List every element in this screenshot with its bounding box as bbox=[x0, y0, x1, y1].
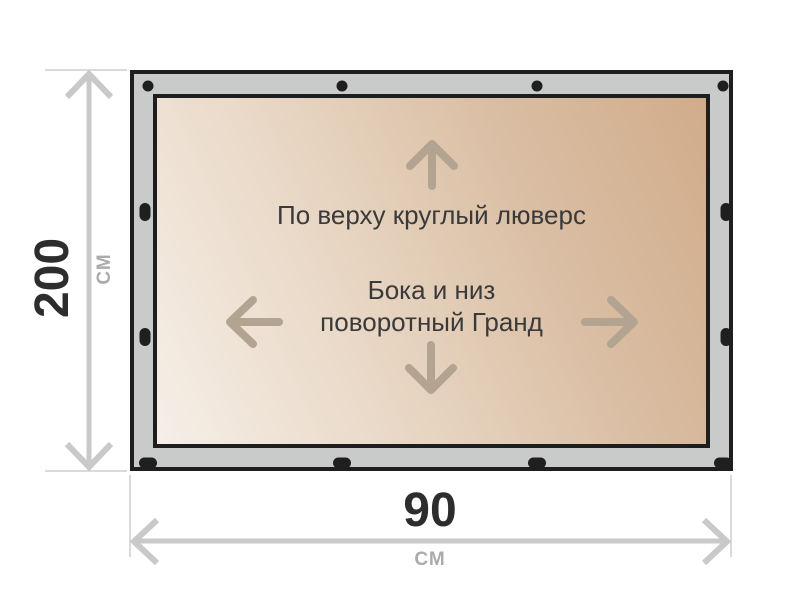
sides-bottom-note: Бока и низ поворотный Гранд bbox=[153, 274, 710, 338]
height-dimension-value: 200 bbox=[28, 178, 78, 378]
canvas-stretch-arrows bbox=[230, 144, 634, 390]
sides-bottom-note-line2: поворотный Гранд bbox=[153, 306, 710, 338]
height-dimension-unit: СМ bbox=[93, 229, 117, 309]
arrow-up-icon bbox=[410, 144, 454, 186]
sides-bottom-note-line1: Бока и низ bbox=[153, 274, 710, 306]
banner-dimension-diagram: По верху круглый люверс Бока и низ повор… bbox=[0, 0, 800, 600]
width-dimension-value: 90 bbox=[130, 486, 730, 536]
arrow-down-icon bbox=[409, 345, 453, 390]
width-dimension-unit: СМ bbox=[130, 548, 730, 572]
top-grommet-note: По верху круглый люверс bbox=[153, 199, 710, 231]
